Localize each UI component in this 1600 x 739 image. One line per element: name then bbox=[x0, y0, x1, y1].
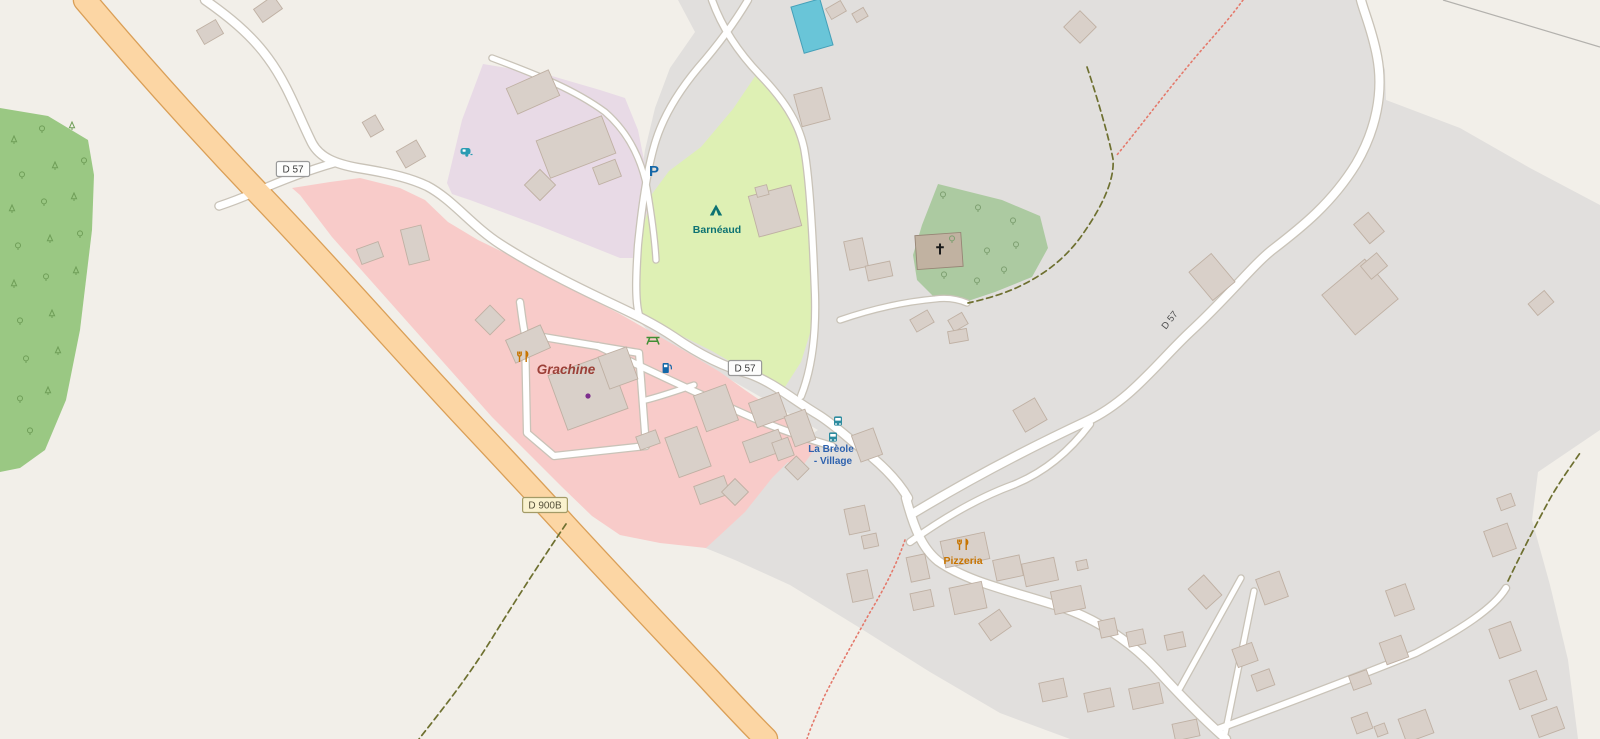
building bbox=[1126, 629, 1146, 647]
map-label-barneaud: Barnéaud bbox=[693, 224, 741, 236]
road-shield: D 57 bbox=[728, 361, 761, 376]
map-canvas[interactable]: PGrachineBarnéaudLa Brèole- VillagePizze… bbox=[0, 0, 1600, 739]
map-label-breole-1: La Brèole bbox=[808, 444, 854, 455]
building bbox=[861, 533, 878, 549]
svg-text:D 900B: D 900B bbox=[528, 501, 562, 512]
dot-icon bbox=[585, 393, 590, 398]
bus-icon[interactable] bbox=[829, 432, 837, 441]
parking-icon[interactable]: P bbox=[649, 163, 659, 180]
map-label-grachine: Grachine bbox=[537, 362, 596, 377]
building bbox=[1098, 618, 1118, 638]
svg-text:D 57: D 57 bbox=[282, 165, 304, 176]
bus-icon[interactable] bbox=[834, 416, 842, 425]
svg-text:P: P bbox=[649, 163, 659, 180]
svg-text:D 57: D 57 bbox=[734, 364, 756, 375]
building bbox=[1076, 559, 1089, 570]
road-shield: D 900B bbox=[523, 498, 568, 513]
map-svg[interactable]: PGrachineBarnéaudLa Brèole- VillagePizze… bbox=[0, 0, 1600, 739]
road-shield: D 57 bbox=[276, 162, 309, 177]
building bbox=[910, 590, 934, 611]
map-label-breole-2: - Village bbox=[814, 456, 853, 467]
map-label-pizzeria: Pizzeria bbox=[943, 555, 982, 567]
